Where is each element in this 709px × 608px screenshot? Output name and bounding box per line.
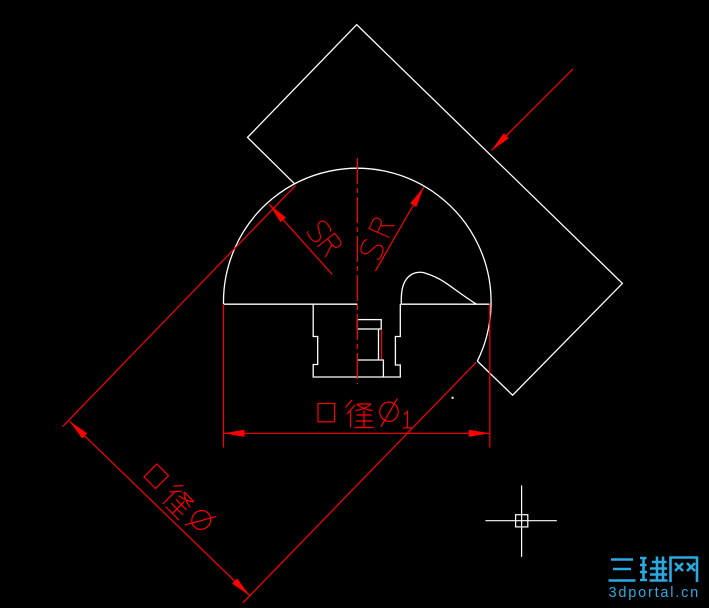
- svg-text:3dportal.cn: 3dportal.cn: [609, 585, 701, 601]
